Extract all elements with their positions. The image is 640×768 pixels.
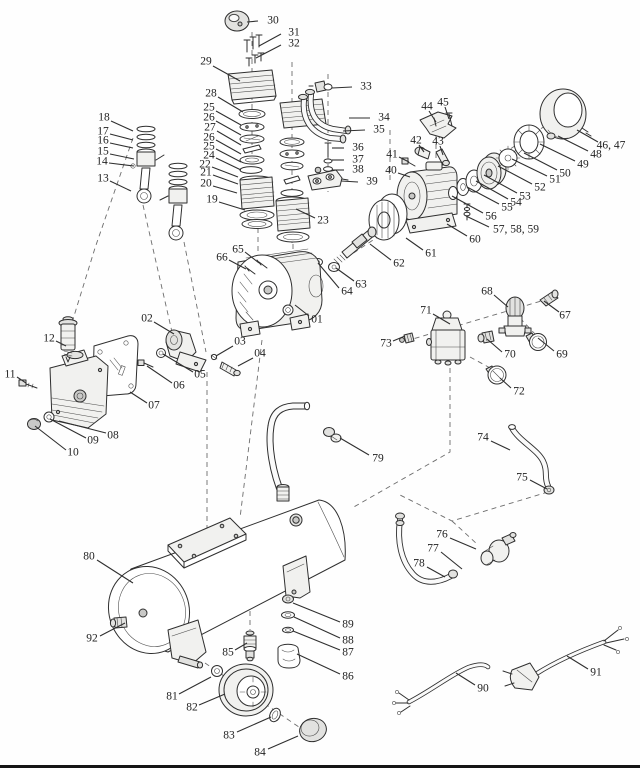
part-label-77: 77 [427,543,439,555]
leader-line-55 [467,187,499,204]
part-label-18: 18 [98,112,110,124]
washer-63 [329,263,340,272]
pin-03 [211,354,217,359]
leader-line-87 [293,631,340,650]
bolt-06 [138,360,153,367]
leader-line-04 [238,358,253,366]
leader-line-74 [491,441,510,450]
stator-ring-48-49 [514,125,544,159]
part-label-04: 04 [254,348,266,360]
leader-line-83 [237,717,271,732]
part-label-65: 65 [232,244,244,256]
bolt-11 [19,380,37,388]
part-label-64: 64 [341,286,353,298]
air-filter-cap [225,11,249,31]
wheel-82 [219,664,273,716]
leader-line-31 [259,34,281,46]
leader-line-89 [293,603,340,622]
bearing-56 [449,187,458,200]
hub-cap-84 [297,715,329,744]
leader-line-07 [130,392,147,403]
leader-line-06 [147,366,172,383]
washer-87 [283,627,294,633]
leader-line-48 [558,136,588,151]
part-label-61: 61 [425,248,437,260]
check-valve-76 [481,533,516,566]
fitting-73 [400,333,414,343]
part-label-87: 87 [342,647,354,659]
pressure-switch-71 [427,311,466,365]
exploded-diagram-canvas: 3031322928252627262524222120192318171615… [0,0,640,768]
nut-75 [544,486,554,494]
part-label-49: 49 [577,159,589,171]
leader-line-16 [110,143,133,148]
part-label-02: 02 [141,313,153,325]
crankcase-01 [232,249,323,337]
part-label-71: 71 [420,305,432,317]
part-label-73: 73 [380,338,392,350]
leader-line-13 [110,181,131,191]
leader-line-39 [341,181,358,182]
leader-line-49 [540,144,575,161]
part-label-51: 51 [549,174,561,186]
part-label-55: 55 [501,202,513,214]
part-label-42: 42 [410,135,422,147]
washer-81 [212,666,223,677]
part-label-28: 28 [205,88,217,100]
leader-line-91 [567,656,588,669]
leader-line-61 [406,238,423,250]
part-label-23: 23 [317,215,329,227]
part-label-72: 72 [513,386,525,398]
leader-line-26 [216,140,241,154]
leader-line-03 [216,346,233,356]
nut-78 [449,570,458,578]
part-label-10: 10 [67,447,79,459]
standoff-42 [415,147,430,159]
part-label-01: 01 [311,314,323,326]
part-label-34: 34 [378,112,390,124]
part-label-62: 62 [393,258,405,270]
part-label-30: 30 [267,15,279,27]
part-label-88: 88 [342,635,354,647]
rubber-foot-86 [278,644,300,668]
leader-line-15 [110,154,134,159]
part-label-89: 89 [342,619,354,631]
leader-line-62 [370,244,391,260]
leader-line-68 [494,295,508,307]
part-label-69: 69 [556,349,568,361]
leader-line-77 [441,552,462,569]
leader-line-81 [179,677,211,694]
power-cord-91 [503,626,629,690]
mount-bracket-02 [166,330,206,372]
part-label-63: 63 [355,279,367,291]
part-label-68: 68 [481,286,493,298]
part-label-83: 83 [223,730,235,742]
leader-line-33 [332,87,352,88]
leader-line-14 [109,163,134,166]
part-label-29: 29 [200,56,212,68]
part-label-20: 20 [200,178,212,190]
part-label-07: 07 [148,400,160,412]
valve-85 [244,631,256,661]
part-label-66: 66 [216,252,228,264]
part-label-41: 41 [386,149,398,161]
part-label-81: 81 [166,691,178,703]
bolt-04 [220,362,240,376]
part-label-90: 90 [477,683,489,695]
part-label-85: 85 [222,647,234,659]
plug-10 [28,419,41,430]
part-label-32: 32 [288,38,300,50]
part-label-06: 06 [173,380,185,392]
piston-assembly-front [131,126,164,203]
part-label-52: 52 [534,182,546,194]
crankshaft-62 [334,227,376,264]
part-label-78: 78 [413,558,425,570]
plug-79 [324,428,342,443]
retaining-clip-83 [268,707,283,724]
leader-line-70 [487,339,502,352]
mounting-bracket-44-45 [420,112,456,138]
discharge-pipe-77 [396,513,452,582]
part-label-11: 11 [4,369,15,381]
part-label-86: 86 [342,671,354,683]
cylinder-front [240,176,274,229]
leader-line-78 [427,567,445,577]
leader-line-79 [340,438,369,455]
part-label-35: 35 [373,124,385,136]
part-label-19: 19 [206,194,218,206]
part-label-56: 56 [485,211,497,223]
nut-89 [283,595,294,603]
part-label-91: 91 [590,667,602,679]
power-cord-90 [392,665,488,715]
leader-line-20 [213,186,237,193]
part-label-14: 14 [96,156,108,168]
part-label-05: 05 [194,369,206,381]
part-label-74: 74 [477,432,489,444]
part-label-57-58-59: 57, 58, 59 [493,224,539,236]
part-label-45: 45 [437,97,449,109]
parts-diagram-page: 3031322928252627262524222120192318171615… [0,0,640,768]
leader-line-90 [456,673,475,685]
washer-05 [157,349,166,358]
part-label-84: 84 [254,747,266,759]
leader-line-86 [297,654,340,674]
part-label-50: 50 [559,168,571,180]
head-bolts-36-38 [315,143,332,173]
leader-line-88 [294,617,340,638]
part-label-36: 36 [352,142,364,154]
manifold-39 [308,170,348,190]
part-label-44: 44 [421,101,433,113]
part-label-60: 60 [469,234,481,246]
part-label-40: 40 [385,165,397,177]
leader-line-18 [111,121,133,131]
tank-handle [270,402,310,497]
leader-line-17 [110,134,133,140]
part-label-67: 67 [559,310,571,322]
fitting-70 [478,331,494,343]
head-bolts-31-32 [244,35,264,66]
leader-line-60 [447,224,467,236]
outlet-tube-74 [509,425,548,486]
head-cover-08 [50,350,108,428]
part-label-43: 43 [432,136,444,148]
part-label-09: 09 [87,435,99,447]
leader-line-84 [268,736,298,749]
part-label-92: 92 [86,633,98,645]
end-cover-46-47 [540,89,591,139]
part-label-03: 03 [234,336,246,348]
part-label-12: 12 [43,333,55,345]
leader-line-32 [256,45,281,58]
part-label-39: 39 [366,176,378,188]
part-label-80: 80 [83,551,95,563]
cylinder-rear [276,197,310,242]
part-label-76: 76 [436,529,448,541]
fitting-67 [540,290,558,306]
part-label-82: 82 [186,702,198,714]
leader-line-21 [213,175,238,184]
leader-line-10 [35,426,66,450]
part-label-13: 13 [97,173,109,185]
part-label-48: 48 [590,149,602,161]
part-label-33: 33 [360,81,372,93]
washer-88 [282,612,295,618]
part-label-38: 38 [352,164,364,176]
part-label-79: 79 [372,453,384,465]
part-label-70: 70 [504,349,516,361]
part-label-75: 75 [516,472,528,484]
part-label-08: 08 [107,430,119,442]
tank-port-fitting [277,485,289,502]
leader-line-63 [336,268,354,281]
piston-assembly-rear [160,163,187,240]
